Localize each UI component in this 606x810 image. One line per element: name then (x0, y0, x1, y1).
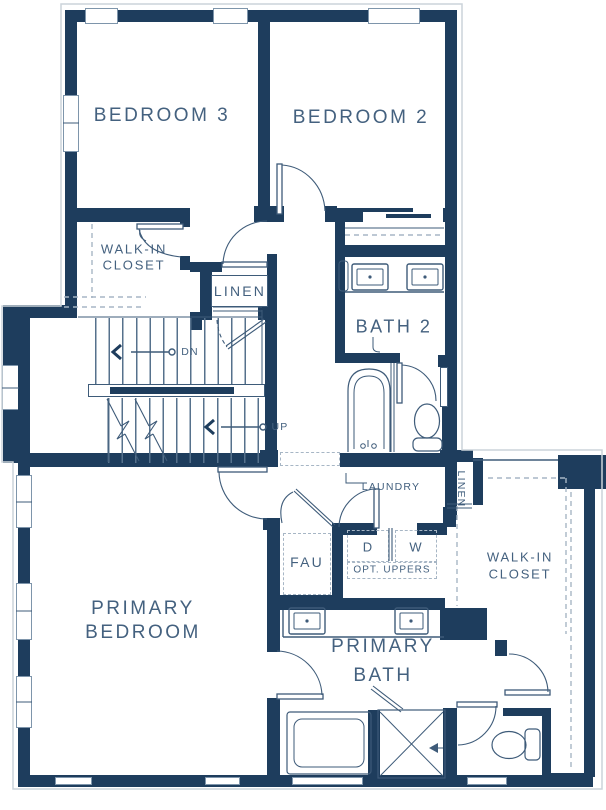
room-label-laundry: LAUNDRY (362, 481, 420, 493)
label-washer: W (409, 540, 422, 555)
room-label-walkin-left-2: CLOSET (103, 258, 166, 273)
bedroom2-closet-shelf (345, 208, 444, 235)
room-label-bedroom2: BEDROOM 2 (293, 107, 430, 129)
room-label-walkin-right-1: WALK-IN (487, 550, 553, 565)
shelves (213, 307, 472, 561)
stair-label-up: UP (272, 421, 289, 433)
stair-label-dn: DN (181, 346, 199, 358)
room-label-primary-bedroom-1: PRIMARY (91, 598, 195, 620)
bath2-fixtures (339, 261, 444, 452)
closet-shelving-right (457, 460, 571, 770)
label-dryer: D (363, 540, 373, 555)
floor-plan: BEDROOM 3 BEDROOM 2 WALK-IN CLOSET LINEN… (0, 0, 606, 810)
leader-lines (140, 230, 380, 483)
room-label-walkin-right-2: CLOSET (489, 567, 552, 582)
room-label-primary-bedroom-2: BEDROOM (85, 622, 201, 644)
label-opt-uppers: OPT. UPPERS (353, 565, 430, 576)
room-label-bedroom3: BEDROOM 3 (94, 105, 231, 127)
room-label-primary-bath-2: BATH (353, 665, 412, 687)
room-label-bath2: BATH 2 (356, 317, 433, 338)
room-label-linen-lower: LINEN (455, 471, 467, 508)
room-label-walkin-left-1: WALK-IN (101, 242, 167, 257)
room-label-linen-upper: LINEN (214, 283, 266, 299)
door-arcs (139, 165, 548, 745)
stair-annotations (78, 310, 266, 462)
room-label-primary-bath-1: PRIMARY (331, 636, 435, 658)
room-label-fau: FAU (290, 554, 324, 570)
